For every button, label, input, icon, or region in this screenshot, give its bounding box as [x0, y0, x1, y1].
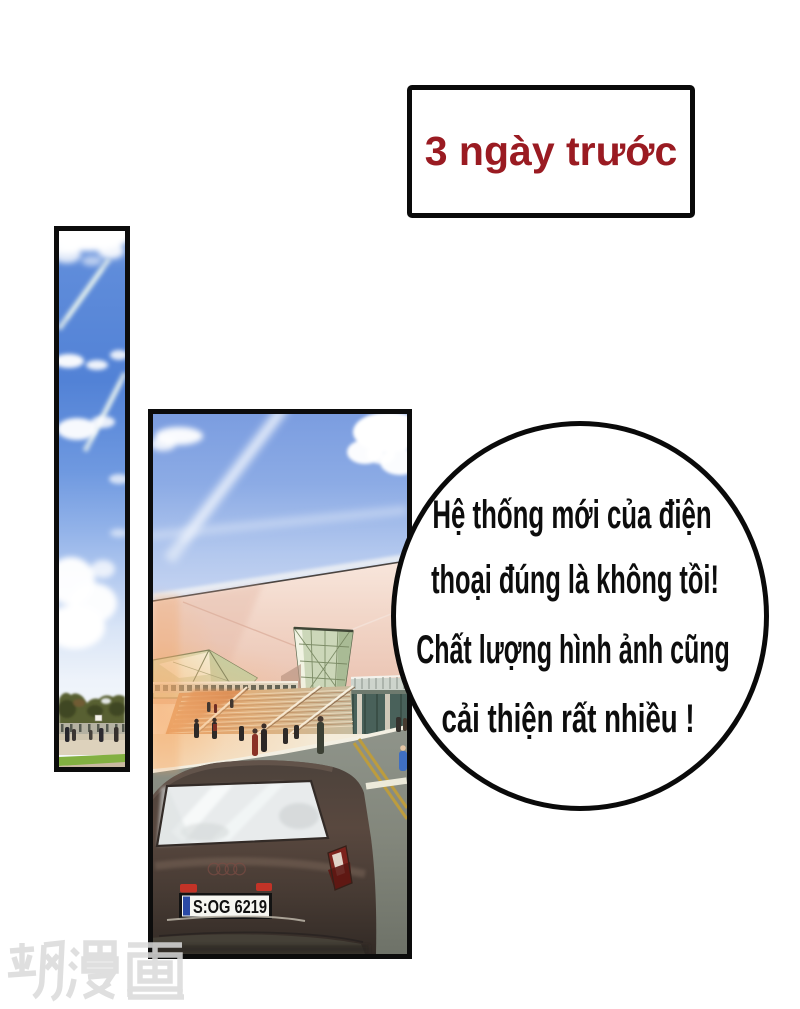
svg-text:S:OG 6219: S:OG 6219	[193, 896, 267, 917]
